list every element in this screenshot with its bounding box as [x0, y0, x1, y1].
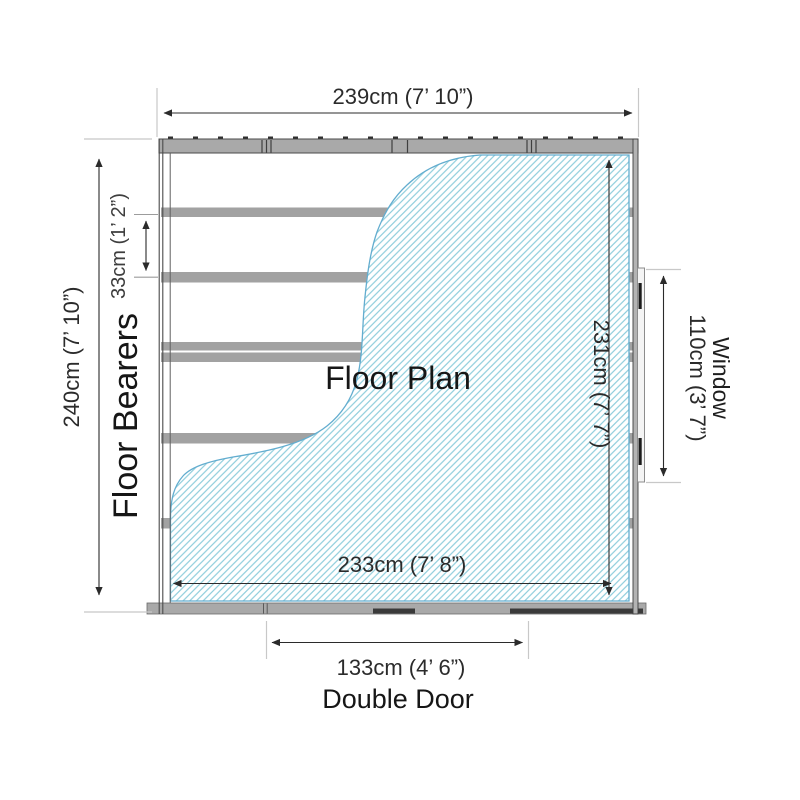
window-hinge-mark [639, 283, 642, 309]
window-hinge-mark [639, 438, 642, 465]
floor-plan-title: Floor Plan [325, 360, 471, 396]
door-width-label: 133cm (4’ 6”) [337, 655, 466, 680]
dimension-overall-width: 239cm (7’ 10”) [157, 84, 639, 137]
overall-width-label: 239cm (7’ 10”) [332, 84, 473, 109]
window-width-label: 110cm (3’ 7”) [685, 314, 710, 441]
floor-bearers-label: Floor Bearers [107, 313, 145, 519]
dimension-bearer-spacing: 33cm (1’ 2”) [108, 193, 158, 299]
dimension-window: 110cm (3’ 7”) Window [646, 270, 734, 483]
door-leaf-mark [510, 609, 643, 614]
internal-width-label: 233cm (7’ 8”) [338, 552, 467, 577]
door-leaf-mark [373, 609, 415, 614]
internal-depth-label: 231cm (7’ 7”) [589, 320, 614, 449]
bearer-spacing-label: 33cm (1’ 2”) [108, 193, 130, 299]
dimension-door: 133cm (4’ 6”) Double Door [267, 621, 529, 714]
floor-plan-page: 239cm (7’ 10”) 240cm (7’ 10”) Floor Bear… [0, 0, 800, 800]
double-door-label: Double Door [322, 684, 474, 714]
top-wall [159, 139, 638, 153]
window-label: Window [708, 337, 734, 419]
floor-plan-diagram: 239cm (7’ 10”) 240cm (7’ 10”) Floor Bear… [0, 0, 800, 800]
overall-depth-label: 240cm (7’ 10”) [59, 286, 84, 427]
